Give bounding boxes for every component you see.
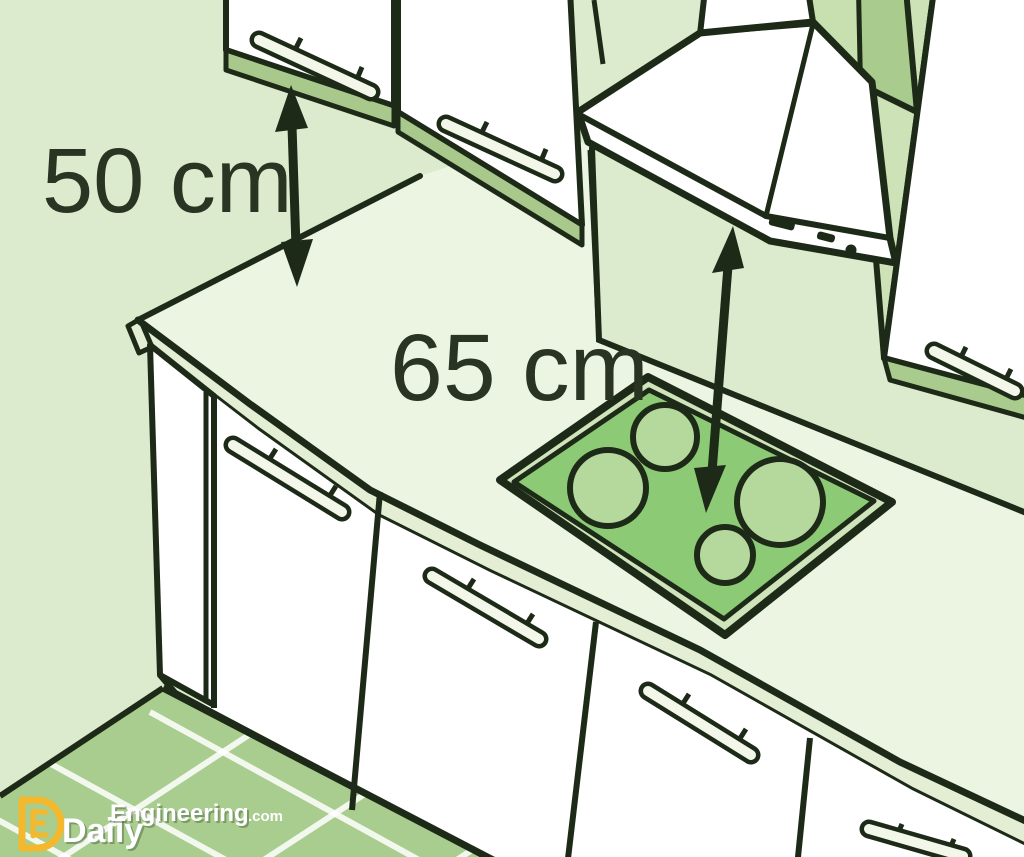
burner-right (737, 459, 823, 545)
diagram-canvas: 50 cm 65 cm Daily Daily Engineering Engi… (0, 0, 1024, 857)
label-50cm: 50 cm (42, 130, 293, 232)
label-65cm: 65 cm (390, 315, 649, 421)
kitchen-clearance-diagram: 50 cm 65 cm Daily Daily Engineering Engi… (0, 0, 1024, 857)
burner-left (570, 450, 646, 526)
watermark-tld: .com (248, 808, 283, 825)
watermark-engineering: Engineering (110, 800, 249, 827)
burner-front (697, 527, 753, 583)
hood-button (846, 245, 857, 256)
